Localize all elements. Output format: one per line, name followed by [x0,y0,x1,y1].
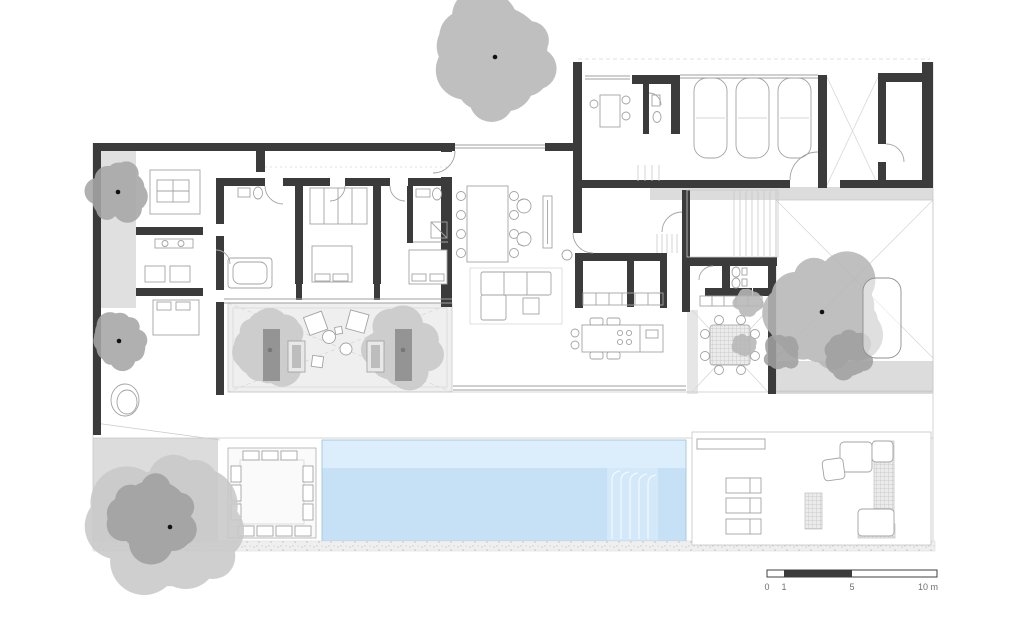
plant-pot [562,250,572,260]
scale-label-5: 5 [849,582,854,592]
bench-under-tree [863,278,901,358]
fireplace [543,196,552,248]
terrace-band-under-garage [650,187,933,200]
entry-steps [638,165,659,181]
bathroom-tub [228,187,272,288]
office-desk [590,95,630,127]
hatched-mat [805,493,822,529]
tree-garden-left-trunk-dot [168,525,173,530]
tree-terrace-east-trunk-dot [820,310,825,315]
scale-bar: 0 1 5 10 m [764,570,938,592]
left-bedroom-bed [153,300,199,335]
laundry-room [150,170,200,214]
tree-left-mid-trunk-dot [117,339,122,344]
kitchen-island [571,318,663,359]
wc-fixtures [652,95,661,123]
left-bathroom-fixtures [145,239,193,282]
patio-side-chair-east [367,341,384,372]
tree-top [436,0,557,122]
staircase [687,190,778,257]
dining-table [457,186,519,262]
bedroom-2 [310,188,367,282]
car [694,78,727,158]
garage-cars [694,78,811,158]
tree-garden-left [85,455,244,595]
patio-lounger-west [263,329,280,381]
tree-top-trunk-dot [493,55,498,60]
lounge-chairs [517,199,531,246]
scale-label-1: 1 [781,582,786,592]
pool-shallow-shelf [322,440,686,468]
patio-lounger-east [395,329,412,381]
outdoor-lounge-area [692,432,931,545]
larder-cabinets [657,234,677,253]
car [778,78,811,158]
garden-path-line [95,423,220,440]
scale-label-10: 10 m [918,582,938,592]
car [736,78,769,158]
pool-step-zone [607,468,658,541]
floor-plan-page: 0 1 5 10 m [0,0,1024,622]
living-sofa [470,268,562,324]
garden-boulder [111,384,139,416]
floor-plan-canvas: 0 1 5 10 m [0,0,1024,622]
dining-terrace-shadow [687,310,698,394]
garage-side-terrace [827,77,878,185]
patio-side-chair-west [288,341,305,372]
kitchen-counter [583,293,663,305]
scale-label-0: 0 [764,582,769,592]
tree-left-upper-trunk-dot [116,190,121,195]
pool [322,440,686,541]
